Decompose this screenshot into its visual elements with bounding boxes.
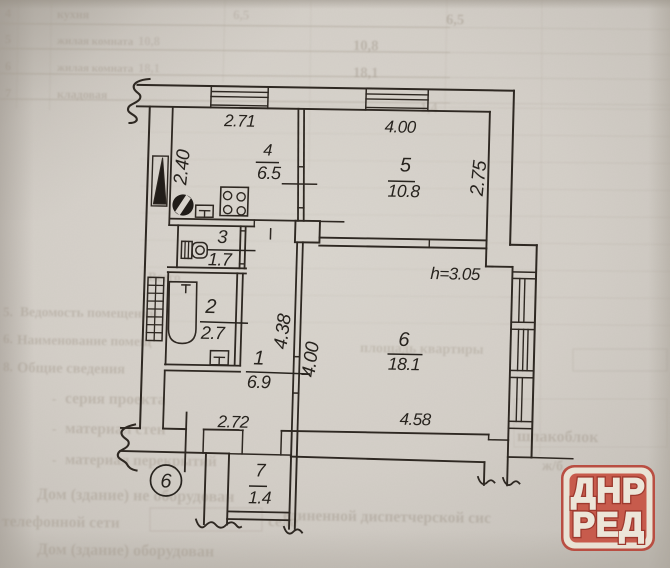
- svg-text:10.8: 10.8: [387, 181, 420, 202]
- svg-text:4: 4: [263, 141, 272, 159]
- svg-text:6,5: 6,5: [446, 12, 464, 28]
- svg-text:6.5: 6.5: [257, 163, 282, 184]
- svg-text:6: 6: [160, 470, 172, 492]
- svg-text:кладовая: кладовая: [57, 87, 108, 102]
- svg-text:-: -: [52, 421, 57, 436]
- svg-text:2: 2: [204, 296, 216, 318]
- svg-text:4.58: 4.58: [399, 410, 432, 430]
- svg-text:ДНР: ДНР: [571, 472, 645, 510]
- svg-text:2.71: 2.71: [223, 111, 256, 131]
- svg-text:2.40: 2.40: [170, 148, 195, 187]
- svg-text:2.7: 2.7: [200, 323, 226, 344]
- svg-text:2.72: 2.72: [216, 412, 250, 432]
- svg-text:1.4: 1.4: [248, 487, 272, 507]
- svg-text:Наименование помещ: Наименование помещ: [17, 332, 152, 349]
- svg-text:Общие сведения: Общие сведения: [17, 360, 125, 378]
- svg-text:6.: 6.: [3, 331, 13, 346]
- svg-text:телефонной сети: телефонной сети: [2, 513, 120, 532]
- svg-text:6,5: 6,5: [233, 7, 250, 22]
- svg-text:-: -: [52, 452, 57, 467]
- svg-text:18,1: 18,1: [138, 61, 160, 75]
- svg-text:Дом (здание) оборудован: Дом (здание) оборудован: [37, 541, 214, 560]
- svg-text:7: 7: [5, 86, 11, 100]
- svg-text:10,8: 10,8: [353, 38, 379, 54]
- svg-text:шлакоблок: шлакоблок: [517, 428, 599, 446]
- svg-text:10,8: 10,8: [138, 34, 160, 48]
- svg-text:5: 5: [400, 154, 412, 176]
- svg-text:18,1: 18,1: [353, 65, 379, 81]
- svg-text:единенной диспетчерской сис: единенной диспетчерской сис: [283, 507, 491, 527]
- svg-text:6: 6: [5, 59, 11, 73]
- svg-text:серия проекта: серия проекта: [65, 390, 166, 408]
- svg-text:2.75: 2.75: [467, 159, 492, 198]
- svg-text:-: -: [52, 391, 57, 406]
- svg-text:1.7: 1.7: [208, 249, 233, 270]
- svg-text:3: 3: [217, 226, 228, 247]
- svg-text:h=3.05: h=3.05: [430, 264, 481, 284]
- svg-text:Ведомость помещений: Ведомость помещений: [20, 304, 158, 321]
- svg-text:РЕД: РЕД: [572, 506, 645, 544]
- svg-text:материал перекрытий: материал перекрытий: [65, 452, 217, 470]
- svg-text:жилая комната: жилая комната: [57, 62, 134, 75]
- svg-text:4.00: 4.00: [384, 117, 417, 137]
- svg-text:кухня: кухня: [57, 7, 90, 21]
- svg-text:материал стен: материал стен: [65, 420, 166, 438]
- svg-text:6.9: 6.9: [247, 372, 271, 392]
- svg-text:6: 6: [398, 329, 410, 351]
- svg-text:18.1: 18.1: [388, 354, 420, 375]
- svg-text:ж/б: ж/б: [542, 459, 563, 474]
- svg-text:4: 4: [5, 6, 11, 20]
- svg-text:5.: 5.: [3, 304, 13, 319]
- svg-text:8.: 8.: [3, 359, 13, 374]
- svg-text:5: 5: [5, 32, 11, 46]
- svg-text:7: 7: [255, 459, 266, 480]
- svg-text:жилая комната: жилая комната: [57, 35, 134, 48]
- svg-text:1: 1: [253, 347, 264, 369]
